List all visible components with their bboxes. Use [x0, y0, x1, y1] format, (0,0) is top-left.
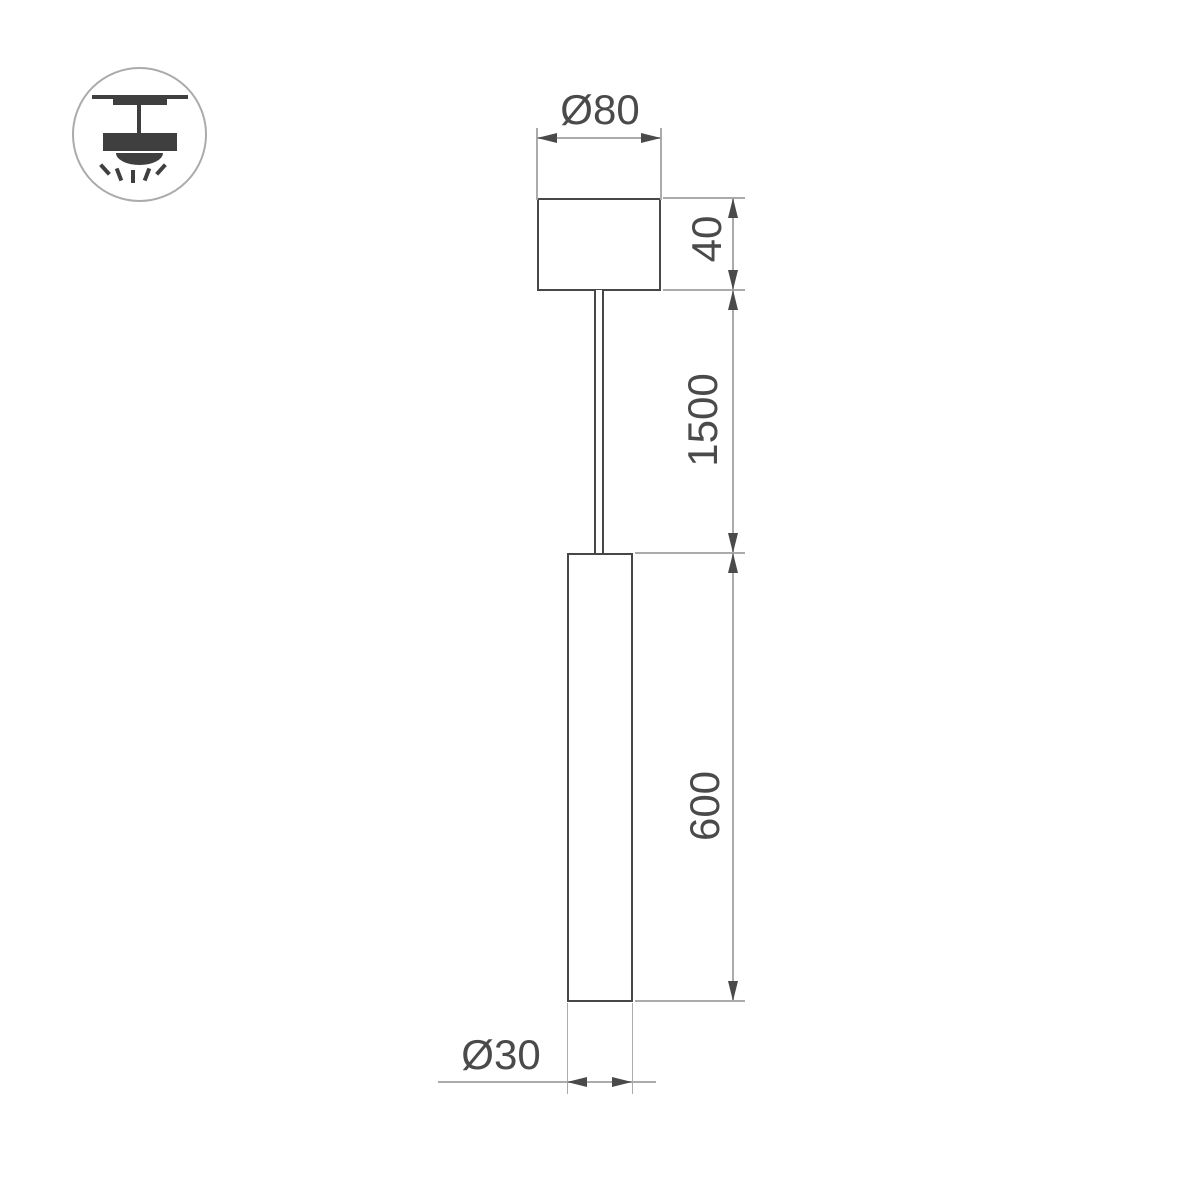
arrow-right-icon: [612, 1077, 632, 1087]
technical-drawing-canvas: Ø80 40 1500 600 Ø30: [0, 0, 1200, 1200]
lamp-tube-rectangle: [567, 553, 633, 1002]
dimension-label-body-length: 600: [684, 771, 726, 841]
suspension-cable: [594, 290, 604, 553]
canopy-rectangle: [537, 198, 661, 291]
dimension-label-suspension-length: 1500: [682, 373, 724, 466]
arrow-down-icon: [728, 270, 738, 290]
icon-lamp-body: [103, 133, 177, 151]
arrow-down-icon: [728, 533, 738, 553]
dimension-line: [732, 290, 734, 553]
arrow-right-icon: [641, 133, 661, 143]
extension-line: [635, 1000, 745, 1002]
dimension-line: [732, 553, 734, 1001]
arrow-left-icon: [537, 133, 557, 143]
dimension-label-canopy-height: 40: [686, 216, 728, 263]
icon-stem: [137, 105, 141, 135]
arrow-up-icon: [728, 290, 738, 310]
arrow-down-icon: [728, 981, 738, 1001]
arrow-up-icon: [728, 553, 738, 573]
dimension-label-canopy-diameter: Ø80: [560, 89, 639, 131]
dimension-label-body-diameter: Ø30: [461, 1034, 540, 1076]
arrow-left-icon: [567, 1077, 587, 1087]
icon-light-ray: [131, 170, 135, 183]
